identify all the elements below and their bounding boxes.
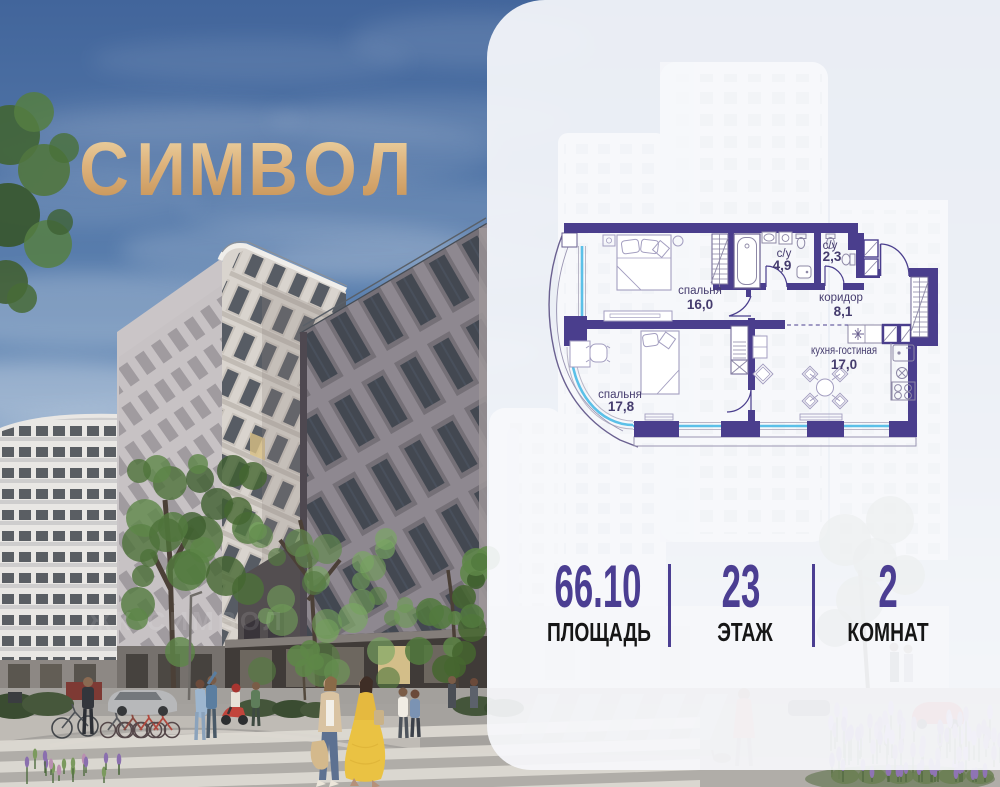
svg-text:спальня: спальня xyxy=(678,285,722,297)
svg-text:коридор: коридор xyxy=(819,292,863,304)
svg-text:17,0: 17,0 xyxy=(831,357,857,372)
svg-text:17,8: 17,8 xyxy=(608,399,635,414)
svg-text:ЭТАЖ: ЭТАЖ xyxy=(717,617,773,647)
svg-text:2: 2 xyxy=(878,554,897,620)
svg-text:8,1: 8,1 xyxy=(834,304,853,319)
svg-text:2,3: 2,3 xyxy=(823,249,842,264)
svg-text:66.10: 66.10 xyxy=(554,554,641,620)
svg-text:ПЛОЩАДЬ: ПЛОЩАДЬ xyxy=(547,617,651,647)
svg-text:16,0: 16,0 xyxy=(687,297,713,312)
svg-text:КОМНАТ: КОМНАТ xyxy=(847,617,928,647)
svg-text:4,9: 4,9 xyxy=(773,258,792,273)
svg-text:кухня-гостиная: кухня-гостиная xyxy=(811,345,877,357)
svg-text:23: 23 xyxy=(722,554,761,620)
